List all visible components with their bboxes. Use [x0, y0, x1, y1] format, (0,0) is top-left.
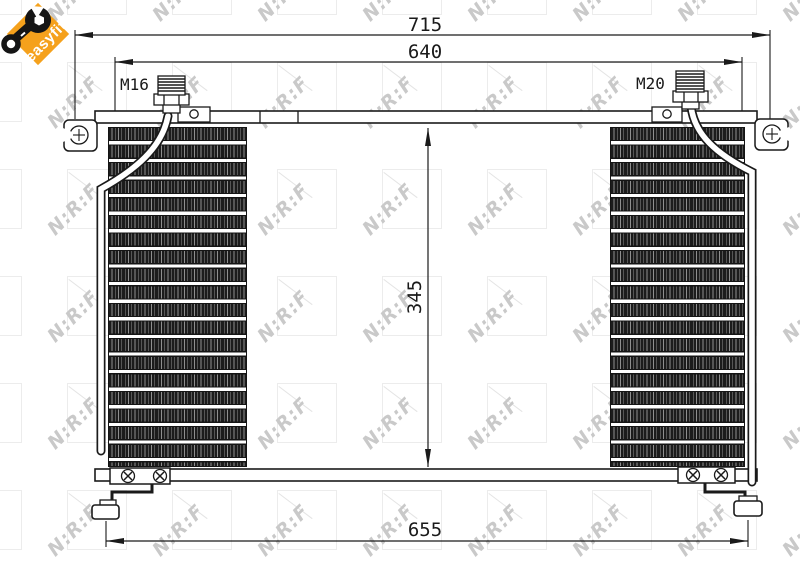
technical-drawing-canvas: N:R:FN:R:FN:R:FN:R:FN:R:FN:R:FN:R:FN:R:F…	[0, 0, 800, 572]
dim-core-height-label: 345	[404, 267, 426, 327]
outlet-pipe-right	[691, 106, 752, 482]
port-label-m16: M16	[120, 75, 149, 94]
bracket-right	[755, 119, 789, 150]
inlet-pipe-left	[101, 116, 168, 451]
dim-lower-width-label: 655	[390, 519, 460, 541]
dim-upper-width-label: 640	[395, 41, 455, 63]
port-label-m20: M20	[636, 74, 665, 93]
bracket-left	[63, 120, 97, 151]
easyfit-badge: easyfit	[0, 0, 112, 112]
dim-overall-width-label: 715	[395, 14, 455, 36]
header-tank-bottom	[95, 469, 757, 481]
key-icon	[0, 6, 64, 66]
fitting-m20	[673, 71, 708, 109]
